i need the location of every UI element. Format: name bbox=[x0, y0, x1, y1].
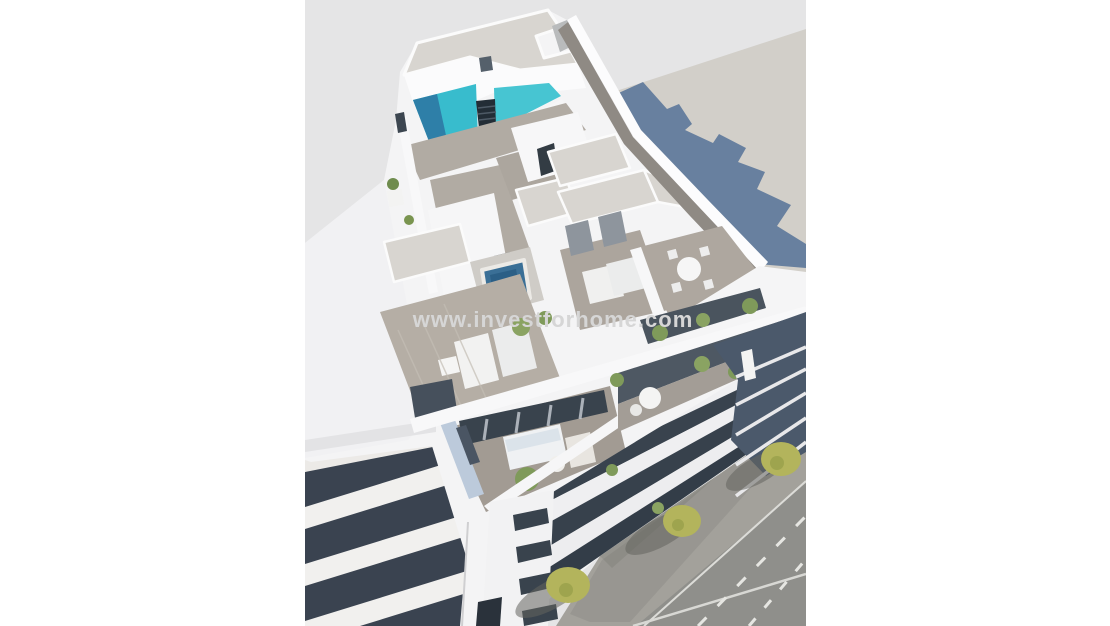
svg-text:www.investforhome.com: www.investforhome.com bbox=[412, 307, 694, 332]
